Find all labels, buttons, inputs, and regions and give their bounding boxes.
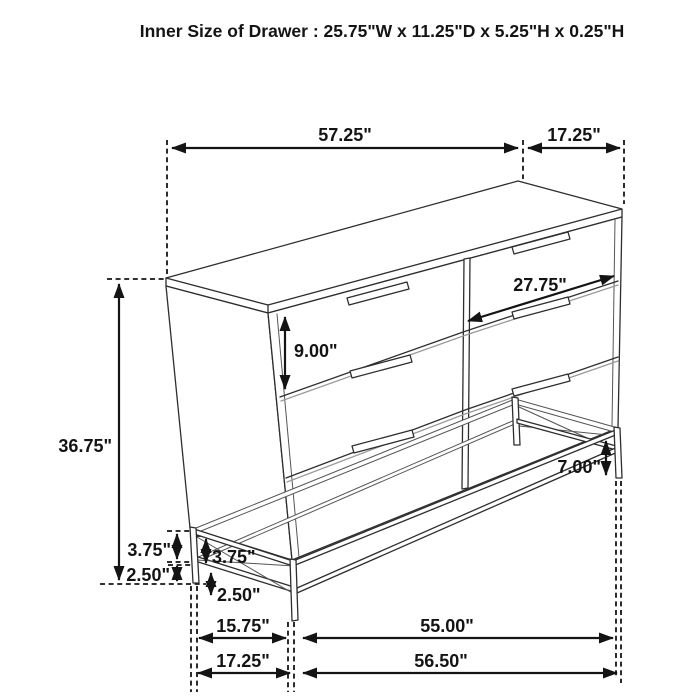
- dim-label-base-depth-inner: 15.75": [216, 616, 270, 636]
- dim-label-base-lower-inner: 2.50": [217, 585, 261, 605]
- dim-label-base-width-inner: 55.00": [420, 616, 474, 636]
- dim-label-base-width-outer: 56.50": [414, 651, 468, 671]
- dim-label-drawer-width: 27.75": [513, 275, 567, 295]
- dim-label-base-upper-inner: 3.75": [212, 547, 256, 567]
- dim-label-base-depth-outer: 17.25": [216, 651, 270, 671]
- dresser-dimension-page: Inner Size of Drawer : 25.75"W x 11.25"D…: [0, 0, 700, 700]
- dim-label-drawer-height: 9.00": [294, 341, 338, 361]
- dresser-dimension-diagram: Inner Size of Drawer : 25.75"W x 11.25"D…: [0, 0, 700, 700]
- front-right-leg: [614, 427, 622, 478]
- dim-label-right-base-height: 7.00": [557, 457, 601, 477]
- dim-label-base-lower-outer: 2.50": [126, 565, 170, 585]
- diagram-title: Inner Size of Drawer : 25.75"W x 11.25"D…: [140, 21, 625, 41]
- dim-label-overall-height: 36.75": [58, 436, 112, 456]
- dim-label-base-upper-outer: 3.75": [127, 540, 171, 560]
- front-left-leg: [290, 559, 298, 621]
- dim-label-top-depth: 17.25": [547, 125, 601, 145]
- dim-label-top-width: 57.25": [318, 125, 372, 145]
- center-divider: [462, 258, 470, 489]
